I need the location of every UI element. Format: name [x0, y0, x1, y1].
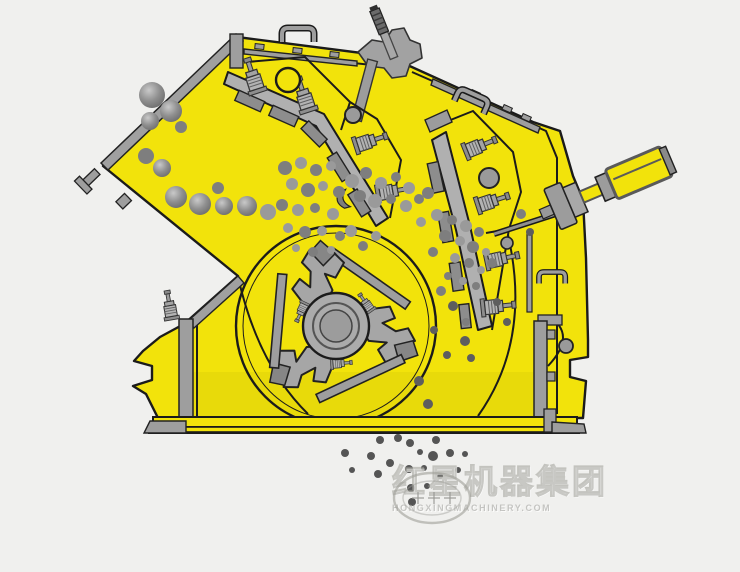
- rock: [367, 452, 375, 460]
- rock: [327, 208, 339, 220]
- rock: [428, 451, 438, 461]
- rock: [345, 225, 357, 237]
- rock: [276, 199, 288, 211]
- rock: [462, 318, 470, 326]
- wall-bolt-hole: [559, 339, 573, 353]
- rock: [436, 286, 446, 296]
- rock: [460, 220, 472, 232]
- rock: [459, 277, 467, 285]
- impact-crusher-diagram: [0, 0, 740, 572]
- rock: [326, 161, 336, 171]
- rock: [141, 112, 159, 130]
- rock: [386, 459, 394, 467]
- rock: [444, 272, 452, 280]
- rock: [160, 100, 182, 122]
- rock: [333, 186, 345, 198]
- rock: [464, 258, 474, 268]
- rock: [493, 298, 501, 306]
- rock: [460, 336, 470, 346]
- rock: [299, 226, 311, 238]
- chute-tab: [116, 193, 132, 209]
- chute-end-bracket: [74, 165, 103, 194]
- rock: [358, 241, 368, 251]
- rock: [417, 449, 423, 455]
- rock: [455, 467, 461, 473]
- apron-pivot-hole: [479, 168, 499, 188]
- rock: [482, 248, 490, 256]
- rock: [447, 215, 457, 225]
- rock: [422, 187, 434, 199]
- rock: [394, 434, 402, 442]
- rock: [189, 193, 211, 215]
- rock: [153, 159, 171, 177]
- rock: [423, 399, 433, 409]
- rock: [295, 157, 307, 169]
- rock: [260, 204, 276, 220]
- rock: [462, 451, 468, 457]
- crushed-product-dots: [341, 434, 468, 506]
- rock: [428, 247, 438, 257]
- rock: [391, 172, 401, 182]
- rock: [416, 217, 426, 227]
- rock: [407, 484, 415, 492]
- rock: [292, 204, 304, 216]
- rock: [406, 439, 414, 447]
- rock: [327, 246, 335, 254]
- foot-bolt: [159, 289, 179, 321]
- rock: [335, 231, 345, 241]
- rock: [374, 470, 382, 478]
- rock: [448, 301, 458, 311]
- rock: [450, 253, 460, 263]
- lid-handle: [282, 28, 314, 42]
- rock: [408, 498, 416, 506]
- rock: [439, 230, 451, 242]
- rock: [455, 236, 465, 246]
- crusher-diagram-stage: 红星机器集团 HONGXINGMACHINERY.COM: [0, 0, 740, 572]
- rock: [467, 354, 475, 362]
- rock: [414, 376, 424, 386]
- rock: [432, 436, 440, 444]
- rock: [386, 194, 396, 204]
- rock: [165, 186, 187, 208]
- rock: [443, 351, 451, 359]
- rock: [405, 465, 413, 473]
- rock: [487, 258, 497, 268]
- rock: [317, 226, 327, 236]
- rock: [345, 174, 359, 188]
- rock: [310, 203, 320, 213]
- rock: [278, 161, 292, 175]
- rock: [400, 200, 412, 212]
- rock: [403, 182, 415, 194]
- rock: [472, 282, 480, 290]
- rock: [503, 318, 511, 326]
- rock: [526, 228, 534, 236]
- apron-pivot-hole: [276, 68, 300, 92]
- rock: [354, 190, 366, 202]
- rock: [138, 148, 154, 164]
- rock: [446, 449, 454, 457]
- rock: [175, 121, 187, 133]
- rock: [421, 465, 427, 471]
- rock: [212, 182, 224, 194]
- base-foot-right: [552, 422, 586, 433]
- rock: [301, 183, 315, 197]
- rock: [283, 223, 293, 233]
- rock: [308, 247, 318, 257]
- rock: [371, 231, 381, 241]
- rock: [376, 436, 384, 444]
- rock: [318, 181, 328, 191]
- rock: [414, 194, 424, 204]
- rock: [310, 164, 322, 176]
- rock: [215, 197, 233, 215]
- rock: [341, 449, 349, 457]
- rock: [375, 177, 387, 189]
- rock: [292, 244, 300, 252]
- rock: [360, 167, 372, 179]
- rock: [516, 209, 526, 219]
- lid-corner-post: [230, 34, 243, 68]
- rock: [437, 473, 443, 479]
- rock: [139, 82, 165, 108]
- rock: [431, 209, 443, 221]
- rock: [368, 194, 382, 208]
- rock: [477, 266, 485, 274]
- rock: [349, 467, 355, 473]
- rotor-hub: [303, 293, 369, 359]
- rock: [286, 178, 298, 190]
- rock: [237, 196, 257, 216]
- rock: [474, 227, 484, 237]
- rock: [424, 483, 430, 489]
- rock: [430, 326, 438, 334]
- base-foot-left: [144, 421, 186, 433]
- rock: [467, 241, 479, 253]
